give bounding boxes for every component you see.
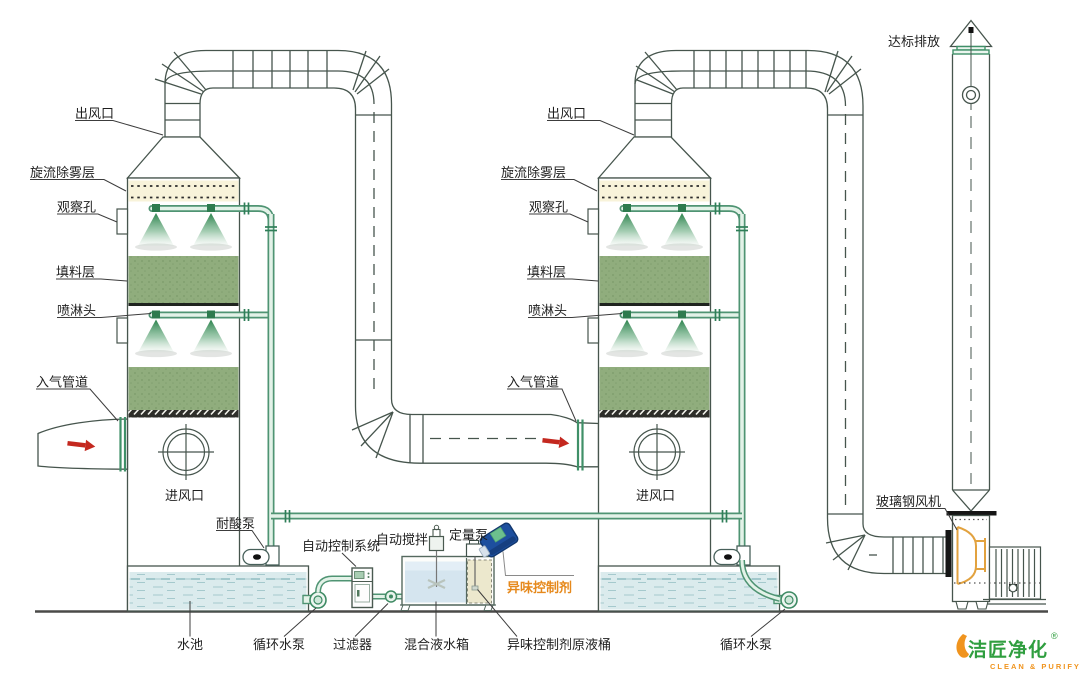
- sampling-port-icon: [963, 87, 980, 104]
- control-system-label: 自动控制系统: [302, 539, 380, 554]
- agent-compartment: [468, 560, 492, 603]
- logo-name: 洁匠净化: [968, 638, 1048, 661]
- tower2-sight-glass-label: 观察孔: [529, 200, 568, 215]
- scrubber-tower-1: [117, 137, 326, 611]
- tower1-packing-label: 填料层: [56, 265, 95, 280]
- tower1-air-inlet-label: 进风口: [165, 488, 204, 503]
- logo-reg: ®: [1051, 631, 1058, 641]
- scrubber-tower-2: [588, 137, 797, 611]
- tower2-air-inlet-label: 进风口: [636, 488, 675, 503]
- metering-pump-label: 定量泵: [449, 528, 488, 543]
- scrubber-system-diagram: 出风口 旋流除雾层 观察孔 填料层 喷淋头 入气管道 进风口 耐酸泵 水池 循环…: [0, 0, 1080, 689]
- tower1-gas-inlet-horn: [38, 417, 128, 472]
- fan-label: 玻璃钢风机: [876, 494, 941, 509]
- tower2-demister-label: 旋流除雾层: [501, 165, 566, 180]
- odor-agent-label: 异味控制剂: [507, 580, 572, 595]
- fan-motor-icon: [990, 547, 1041, 599]
- agent-drum-label: 异味控制剂原液桶: [507, 637, 611, 652]
- tower2-spray-head-label: 喷淋头: [528, 303, 567, 318]
- pool-label: 水池: [177, 637, 203, 652]
- exhaust-stack: [951, 21, 992, 512]
- tower2-packing-label: 填料层: [527, 265, 566, 280]
- circ-pump-right-label: 循环水泵: [720, 637, 772, 652]
- logo-tagline: CLEAN & PURIFY: [990, 662, 1080, 671]
- mixing-tank-label: 混合液水箱: [404, 637, 469, 652]
- frp-fan: [946, 511, 1047, 609]
- auto-stirrer-label: 自动搅拌: [376, 532, 428, 547]
- tower1-demister-label: 旋流除雾层: [30, 165, 95, 180]
- tower1-acid-pump-label: 耐酸泵: [216, 516, 255, 531]
- discharge-label: 达标排放: [888, 34, 940, 49]
- tower1-outlet-label: 出风口: [75, 106, 114, 121]
- brand-logo: 洁匠净化 ® CLEAN & PURIFY: [956, 631, 1080, 671]
- tower2-gas-inlet-label: 入气管道: [507, 375, 559, 390]
- cabinet-screen: [355, 572, 365, 579]
- tower1-gas-inlet-label: 入气管道: [36, 375, 88, 390]
- control-system-cabinet: [352, 568, 373, 608]
- tower1-spray-head-label: 喷淋头: [57, 303, 96, 318]
- circ-pump-left-label: 循环水泵: [253, 637, 305, 652]
- filter-label: 过滤器: [333, 637, 372, 652]
- tower2-outlet-label: 出风口: [547, 106, 586, 121]
- tower1-sight-glass-label: 观察孔: [57, 200, 96, 215]
